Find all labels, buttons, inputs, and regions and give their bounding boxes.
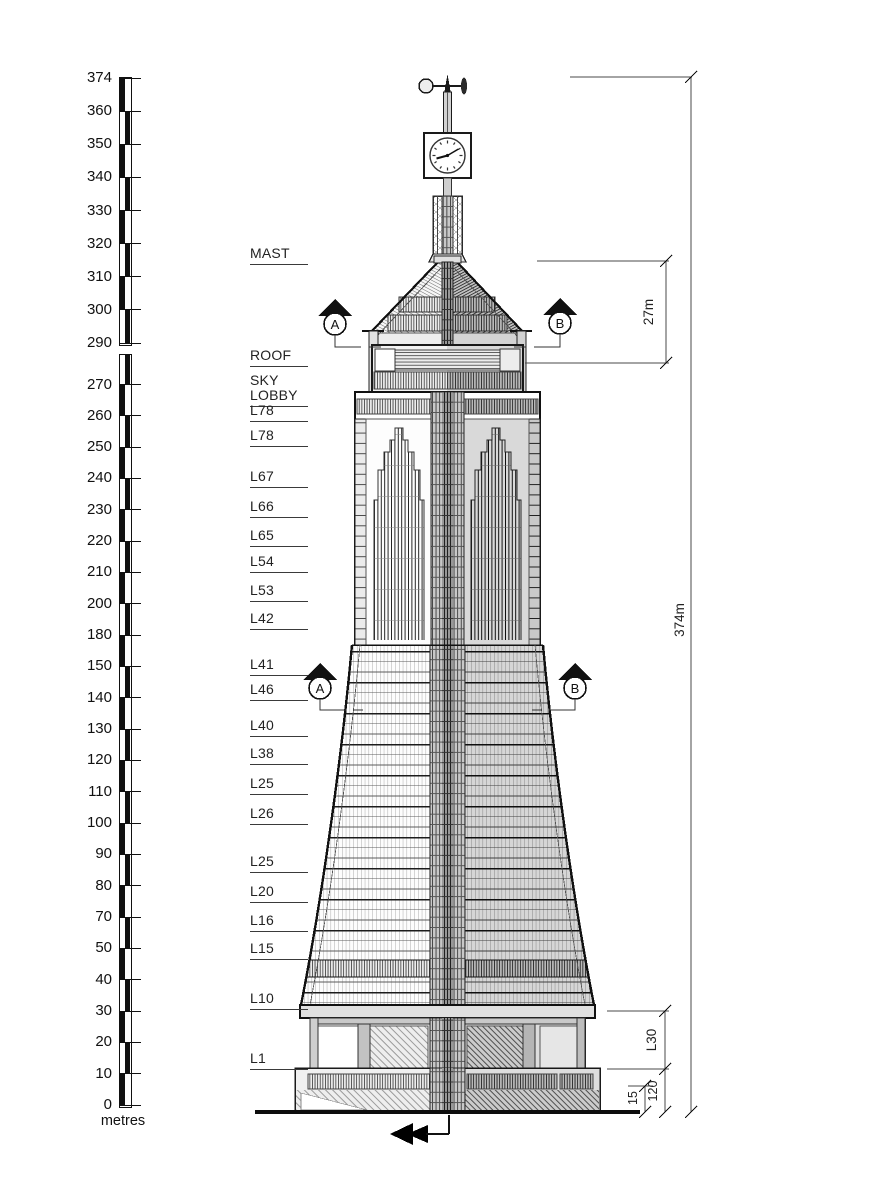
section-letter-b-top: B [551,316,569,332]
scale-label: 330 [40,202,112,220]
scale-bar-segment [125,385,130,416]
scale-label: 220 [40,532,112,550]
scale-bar-segment [125,666,130,697]
scale-label: 300 [40,301,112,319]
upper-shaft [355,392,540,645]
scale-bar-segment [125,510,130,541]
scale-bar-segment [125,277,130,310]
scale-bar-segment [125,447,130,478]
scale-tick [120,635,141,636]
dim-podium: 120 [644,1069,662,1113]
scale-tick [120,309,141,310]
scale-bar-segment [125,416,130,447]
scale-tick [120,343,141,344]
scale-tick [120,666,141,667]
scale-label: 100 [40,814,112,832]
scale-bar-segment [125,854,130,885]
mast-lattice [429,178,466,262]
scale-bar-segment [125,78,130,111]
colonnade [310,1018,585,1068]
scale-bar-segment [125,478,130,509]
scale-bar-segment [125,1042,130,1073]
level-label: L16 [250,913,308,932]
scale-tick [120,760,141,761]
scale-bar-segment [125,144,130,177]
scale-bar-segment [125,729,130,760]
scale-bar-segment [125,572,130,603]
level-label: L26 [250,806,308,825]
scale-tick [120,854,141,855]
roof-block [366,345,529,393]
scale-label: 150 [40,657,112,675]
level-label: L66 [250,499,308,518]
dimension-ticks [639,71,697,1118]
scale-tick [120,823,141,824]
level-label: MAST [250,246,308,265]
level-label: L78 [250,428,308,447]
section-letter-a-mid: A [311,681,329,697]
scale-bar-segment [125,917,130,948]
scale-label: 80 [40,877,112,895]
scale-bar-segment [125,1074,130,1105]
scale-tick [120,509,141,510]
scale-label: 260 [40,407,112,425]
scale-label: 310 [40,268,112,286]
scale-label: 20 [40,1033,112,1051]
scale-bar-segment [125,355,130,385]
scale-tick [120,1073,141,1074]
scale-bar-segment [125,604,130,635]
scale-label: 340 [40,168,112,186]
level-label: ROOF [250,348,308,367]
scale-bar-segment [125,244,130,277]
scale-label: 374 [40,69,112,87]
scale-bar-segment [125,792,130,823]
scale-tick [120,384,141,385]
scale-tick [120,447,141,448]
level-label: L40 [250,718,308,737]
tower-drawing [0,0,896,1200]
level-label: L78 [250,403,308,422]
level-label: L38 [250,746,308,765]
scale-tick [120,572,141,573]
scale-bar-segment [125,111,130,144]
scale-label: 40 [40,971,112,989]
scale-tick [120,478,141,479]
level-label: L54 [250,554,308,573]
dim-entry: 15 [624,1076,642,1120]
scale-tick [120,111,141,112]
scale-tick [120,729,141,730]
level-label: L67 [250,469,308,488]
scale-tick [120,1105,141,1106]
scale-tick [120,276,141,277]
level-label: L41 [250,657,308,676]
scale-tick [120,144,141,145]
scale-tick [120,979,141,980]
scale-bar-segment [125,541,130,572]
scale-label: 360 [40,102,112,120]
scale-tick [120,78,141,79]
level-label: L46 [250,682,308,701]
scale-tick [120,917,141,918]
scale-label: 210 [40,563,112,581]
scale-bar-segment [125,177,130,210]
scale-label: 110 [40,783,112,801]
level-label: L42 [250,611,308,630]
scale-bar-segment [125,980,130,1011]
scale-bar-segment [125,698,130,729]
scale-tick [120,177,141,178]
scale-label: 50 [40,939,112,957]
level-label: L1 [250,1051,308,1070]
scale-label: 0 [40,1096,112,1114]
scale-label: 130 [40,720,112,738]
level-label: L15 [250,941,308,960]
scale-tick [120,541,141,542]
scale-label: 200 [40,595,112,613]
entrance-arrow-icon [390,1115,449,1145]
section-letter-b-mid: B [566,681,584,697]
scale-bar-segment [125,760,130,791]
scale-label: 180 [40,626,112,644]
scale-label: 30 [40,1002,112,1020]
level-label: L25 [250,776,308,795]
clock-icon [424,133,471,178]
scale-tick [120,243,141,244]
scale-bar-segment [125,635,130,666]
level-label: L53 [250,583,308,602]
ground-line [255,1110,640,1114]
scale-bar-segment [125,886,130,917]
scale-label: 70 [40,908,112,926]
scale-label: 320 [40,235,112,253]
level-label: L65 [250,528,308,547]
scale-bar-segment [125,1011,130,1042]
level-label: L20 [250,884,308,903]
scale-tick [120,885,141,886]
scale-label: 350 [40,135,112,153]
scale-label: 290 [40,334,112,352]
scale-label: 240 [40,469,112,487]
scale-unit-label: metres [88,1113,158,1129]
scale-bar-segment [125,823,130,854]
dim-lower-zone: L30 [643,1018,661,1062]
scale-tick [120,1042,141,1043]
scale-label: 90 [40,845,112,863]
scale-label: 140 [40,689,112,707]
scale-tick [120,603,141,604]
weather-vane-icon [419,74,467,133]
scale-tick [120,415,141,416]
scale-bar-segment [125,310,130,343]
scale-tick [120,1011,141,1012]
scale-tick [120,791,141,792]
dim-crown-height: 27m [640,290,658,334]
scale-label: 230 [40,501,112,519]
scale-bar-segment [125,211,130,244]
level-label: L10 [250,991,308,1010]
scale-label: 120 [40,751,112,769]
level-label: L25 [250,854,308,873]
flare-body [300,645,595,1018]
dim-overall-height: 374m [671,598,689,642]
scale-tick [120,697,141,698]
scale-label: 270 [40,376,112,394]
scale-tick [120,948,141,949]
elevation-drawing: 3743603503403303203103002902702602502402… [0,0,896,1200]
scale-bar-segment [125,948,130,979]
scale-label: 250 [40,438,112,456]
scale-label: 10 [40,1065,112,1083]
podium [295,1068,600,1112]
section-letter-a-top: A [326,317,344,333]
scale-tick [120,210,141,211]
